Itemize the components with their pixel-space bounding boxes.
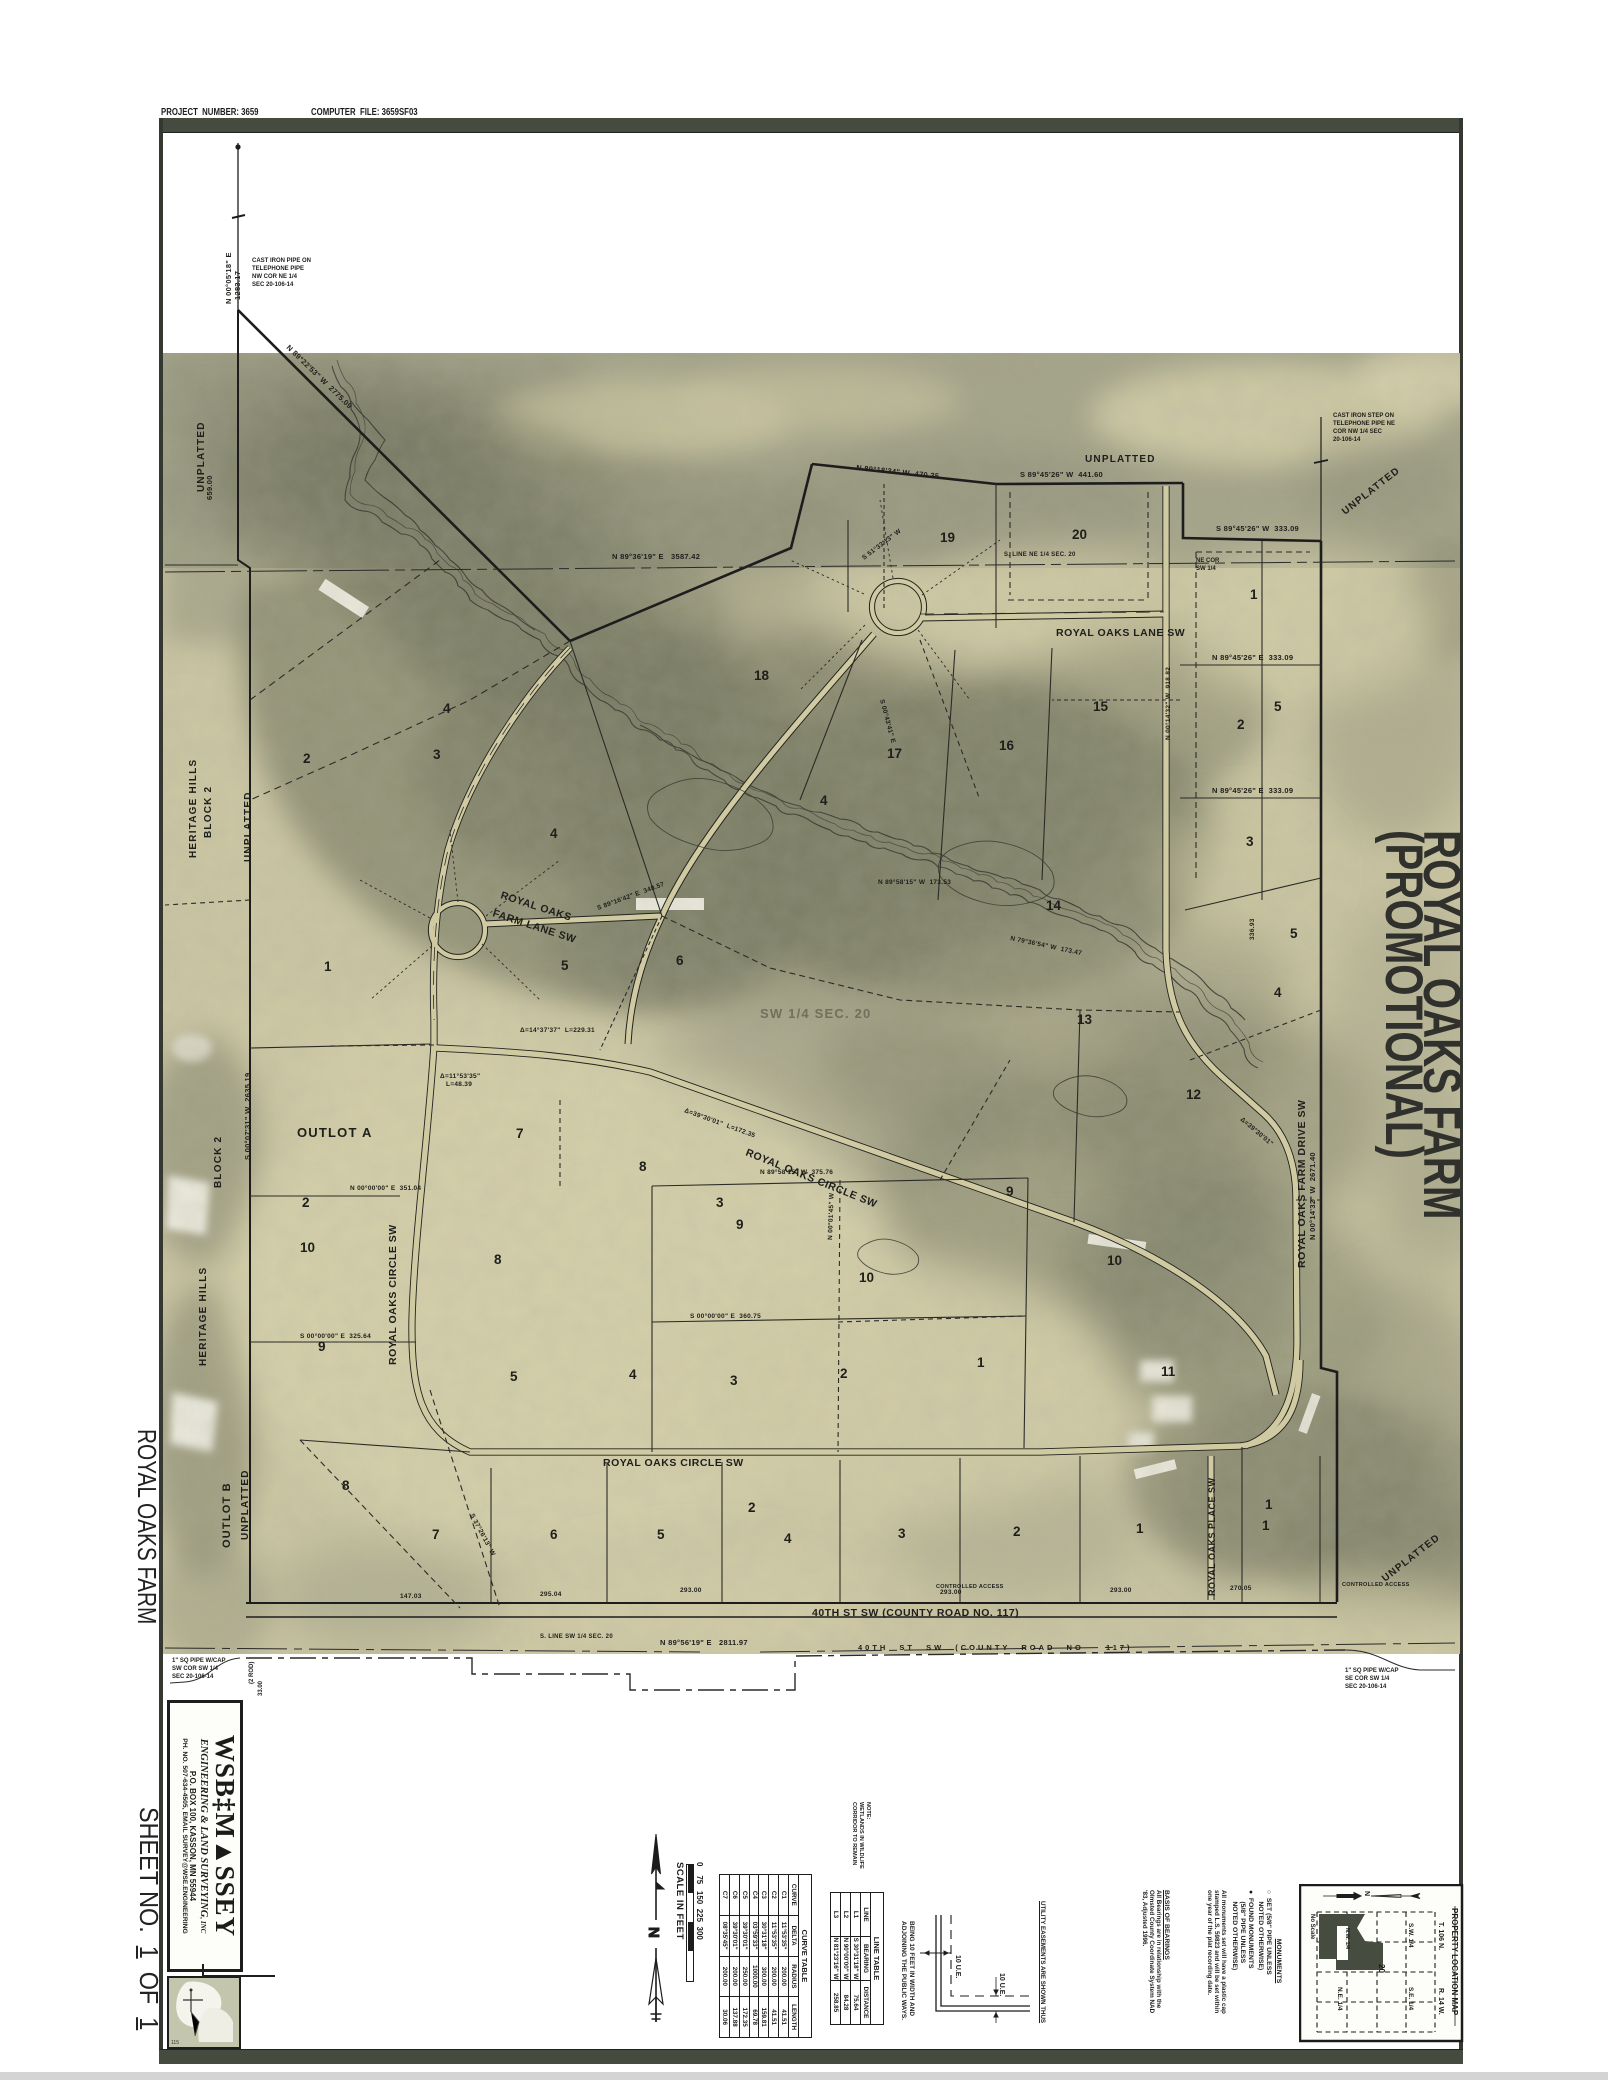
svg-text:14: 14 xyxy=(1046,898,1062,913)
svg-text:CONTROLLED ACCESS: CONTROLLED ACCESS xyxy=(1342,1582,1410,1588)
svg-text:10 U.E.: 10 U.E. xyxy=(998,1973,1005,1996)
svg-text:ROYAL OAKS CIRCLE SW: ROYAL OAKS CIRCLE SW xyxy=(387,1224,399,1365)
svg-text:40TH ST SW (COUNTY ROAD NO 11: 40TH ST SW (COUNTY ROAD NO 117) xyxy=(858,1643,1133,1652)
svg-text:293.00: 293.00 xyxy=(1110,1587,1132,1594)
svg-text:Δ=11°53'35": Δ=11°53'35" xyxy=(440,1072,480,1080)
svg-text:6: 6 xyxy=(550,1527,558,1542)
svg-text:T. 106 N.: T. 106 N. xyxy=(1437,1922,1444,1950)
svg-text:1: 1 xyxy=(1262,1518,1270,1533)
svg-text:CAST IRON PIPE ON: CAST IRON PIPE ON xyxy=(252,258,311,264)
svg-text:336.93: 336.93 xyxy=(1249,918,1256,940)
svg-text:7: 7 xyxy=(432,1527,440,1542)
svg-text:1: 1 xyxy=(324,959,332,974)
svg-text:S 89°45'26" W 333.09: S 89°45'26" W 333.09 xyxy=(1216,524,1299,533)
svg-text:4: 4 xyxy=(629,1367,637,1382)
svg-text:N 89°56'19" E 2811.97: N 89°56'19" E 2811.97 xyxy=(660,1638,748,1647)
svg-text:10: 10 xyxy=(859,1270,874,1285)
svg-text:6: 6 xyxy=(676,953,684,968)
svg-text:1: 1 xyxy=(977,1355,985,1370)
svg-text:N 89°36'19" E 3587.42: N 89°36'19" E 3587.42 xyxy=(612,552,700,561)
svg-text:HERITAGE HILLS: HERITAGE HILLS xyxy=(188,759,199,858)
svg-text:1283.17: 1283.17 xyxy=(233,271,242,300)
svg-text:5: 5 xyxy=(561,958,569,973)
svg-text:2: 2 xyxy=(302,1195,310,1210)
svg-text:293.00: 293.00 xyxy=(680,1587,702,1594)
svg-text:SEC 20-106-14: SEC 20-106-14 xyxy=(172,1674,214,1680)
svg-text:SW 1/4 SEC. 20: SW 1/4 SEC. 20 xyxy=(760,1006,871,1021)
svg-text:N.E. 1/4: N.E. 1/4 xyxy=(1336,1987,1343,2011)
svg-text:N.W. 1/4: N.W. 1/4 xyxy=(1344,1928,1350,1950)
svg-text:5: 5 xyxy=(657,1527,665,1542)
svg-text:9: 9 xyxy=(1006,1184,1014,1199)
svg-text:8: 8 xyxy=(342,1478,350,1493)
svg-text:1: 1 xyxy=(1250,587,1258,602)
svg-text:3: 3 xyxy=(898,1526,906,1541)
svg-text:18: 18 xyxy=(754,668,770,683)
svg-text:9: 9 xyxy=(736,1217,744,1232)
svg-text:3: 3 xyxy=(433,747,441,762)
svg-text:Δ=14°37'37" L=229.31: Δ=14°37'37" L=229.31 xyxy=(520,1026,595,1034)
svg-text:8: 8 xyxy=(494,1252,502,1267)
svg-text:293.00: 293.00 xyxy=(940,1589,962,1596)
svg-text:SW 1/4: SW 1/4 xyxy=(1196,566,1216,572)
svg-text:S.W. 1/4: S.W. 1/4 xyxy=(1407,1923,1414,1948)
svg-text:N 89°58'15" W 375.76: N 89°58'15" W 375.76 xyxy=(760,1168,833,1176)
svg-text:N 89°45'26" E 333.09: N 89°45'26" E 333.09 xyxy=(1212,653,1293,662)
svg-text:5: 5 xyxy=(1290,926,1298,941)
svg-text:TELEPHONE PIPE NE: TELEPHONE PIPE NE xyxy=(1333,421,1395,427)
svg-text:ROYAL OAKS PLACE SW: ROYAL OAKS PLACE SW xyxy=(1207,1477,1217,1596)
svg-text:N 00°14'32" W 918.82: N 00°14'32" W 918.82 xyxy=(1164,667,1172,740)
svg-text:15: 15 xyxy=(1093,699,1109,714)
svg-text:NW COR NE 1/4: NW COR NE 1/4 xyxy=(252,274,298,280)
svg-text:L=48.39: L=48.39 xyxy=(446,1081,472,1088)
svg-text:4: 4 xyxy=(784,1531,792,1546)
svg-text:13: 13 xyxy=(1077,1012,1093,1027)
svg-text:20: 20 xyxy=(1377,1964,1386,1973)
svg-text:16: 16 xyxy=(999,738,1015,753)
svg-text:S 89°45'26" W 441.60: S 89°45'26" W 441.60 xyxy=(1020,470,1103,479)
svg-text:HERITAGE HILLS: HERITAGE HILLS xyxy=(198,1267,209,1366)
svg-text:2: 2 xyxy=(840,1366,848,1381)
svg-text:CAST IRON STEP ON: CAST IRON STEP ON xyxy=(1333,413,1394,419)
svg-text:7: 7 xyxy=(516,1126,524,1141)
svg-text:PROPERTY LOCATION MAP: PROPERTY LOCATION MAP xyxy=(1450,1908,1459,2016)
svg-text:4: 4 xyxy=(1274,985,1282,1000)
svg-text:N: N xyxy=(645,1927,662,1938)
svg-text:(2 ROD): (2 ROD) xyxy=(249,1662,255,1684)
svg-text:2: 2 xyxy=(748,1500,756,1515)
svg-text:4: 4 xyxy=(443,701,451,716)
svg-text:8: 8 xyxy=(639,1159,647,1174)
svg-text:2: 2 xyxy=(303,751,311,766)
svg-text:N 00°14'32" W 2671.40: N 00°14'32" W 2671.40 xyxy=(1308,1152,1317,1240)
svg-text:N 00°05'18" E: N 00°05'18" E xyxy=(224,252,233,304)
svg-text:SE COR SW 1/4: SE COR SW 1/4 xyxy=(1345,1676,1390,1682)
svg-text:N 00°01'45" W: N 00°01'45" W xyxy=(826,1192,836,1240)
svg-text:COR NW 1/4 SEC: COR NW 1/4 SEC xyxy=(1333,429,1383,435)
svg-text:S. LINE NE 1/4 SEC. 20: S. LINE NE 1/4 SEC. 20 xyxy=(1004,552,1076,558)
svg-text:3: 3 xyxy=(716,1195,724,1210)
svg-text:5: 5 xyxy=(510,1369,518,1384)
svg-text:UNPLATTED: UNPLATTED xyxy=(240,1469,251,1540)
svg-text:12: 12 xyxy=(1186,1087,1201,1102)
svg-text:2: 2 xyxy=(1013,1524,1021,1539)
svg-text:OUTLOT A: OUTLOT A xyxy=(297,1125,373,1140)
svg-text:1" SQ PIPE W/CAP: 1" SQ PIPE W/CAP xyxy=(172,1658,226,1664)
svg-text:SW COR SW 1/4: SW COR SW 1/4 xyxy=(172,1666,219,1672)
svg-text:40TH ST SW (COUNTY ROAD NO. 11: 40TH ST SW (COUNTY ROAD NO. 117) xyxy=(812,1607,1019,1619)
svg-text:TELEPHONE PIPE: TELEPHONE PIPE xyxy=(252,266,304,272)
svg-text:4: 4 xyxy=(820,793,828,808)
svg-text:115: 115 xyxy=(171,2040,179,2046)
svg-text:UNPLATTED: UNPLATTED xyxy=(243,791,254,862)
svg-text:1: 1 xyxy=(1136,1521,1144,1536)
svg-text:17: 17 xyxy=(887,746,902,761)
svg-text:ROYAL OAKS FARM DRIVE SW: ROYAL OAKS FARM DRIVE SW xyxy=(1296,1100,1308,1268)
svg-text:N: N xyxy=(1363,1891,1370,1896)
svg-text:2: 2 xyxy=(1237,717,1245,732)
svg-text:BLOCK 2: BLOCK 2 xyxy=(213,1136,224,1188)
svg-text:S.E. 1/4: S.E. 1/4 xyxy=(1407,1987,1414,2011)
svg-text:33.00: 33.00 xyxy=(258,1680,264,1696)
svg-text:20-106-14: 20-106-14 xyxy=(1333,437,1361,443)
svg-text:10 U.E.: 10 U.E. xyxy=(954,1955,961,1978)
svg-text:S. LINE SW 1/4 SEC. 20: S. LINE SW 1/4 SEC. 20 xyxy=(540,1634,613,1640)
svg-text:SEC 20-106-14: SEC 20-106-14 xyxy=(252,282,294,288)
svg-text:ROYAL OAKS LANE SW: ROYAL OAKS LANE SW xyxy=(1056,627,1185,639)
svg-text:5: 5 xyxy=(1274,699,1282,714)
svg-text:1" SQ PIPE W/CAP: 1" SQ PIPE W/CAP xyxy=(1345,1668,1399,1674)
svg-text:9: 9 xyxy=(318,1339,326,1354)
svg-text:N 00°00'00" E 351.04: N 00°00'00" E 351.04 xyxy=(350,1184,421,1192)
svg-text:3: 3 xyxy=(1246,834,1254,849)
svg-text:No Scale: No Scale xyxy=(1309,1914,1315,1940)
svg-text:4: 4 xyxy=(550,826,558,841)
svg-text:BLOCK 2: BLOCK 2 xyxy=(203,786,214,838)
svg-text:659.00: 659.00 xyxy=(205,475,214,500)
svg-text:S 00°00'00" E 360.75: S 00°00'00" E 360.75 xyxy=(690,1312,761,1320)
svg-text:147.03: 147.03 xyxy=(400,1593,422,1600)
svg-text:NE COR: NE COR xyxy=(1196,558,1220,564)
svg-text:CONTROLLED ACCESS: CONTROLLED ACCESS xyxy=(936,1584,1004,1590)
svg-text:10: 10 xyxy=(300,1240,315,1255)
svg-text:11: 11 xyxy=(1161,1364,1176,1379)
svg-text:UNPLATTED: UNPLATTED xyxy=(1085,454,1156,465)
svg-text:S 00°00'00" E 325.64: S 00°00'00" E 325.64 xyxy=(300,1332,371,1340)
svg-text:20: 20 xyxy=(1072,527,1087,542)
svg-text:3: 3 xyxy=(730,1373,738,1388)
svg-text:19: 19 xyxy=(940,530,955,545)
svg-text:N 89°58'15" W 173.53: N 89°58'15" W 173.53 xyxy=(878,878,951,886)
svg-text:270.05: 270.05 xyxy=(1230,1585,1252,1592)
svg-text:R. 14 W.: R. 14 W. xyxy=(1437,1988,1444,2015)
svg-text:N 89°45'26" E 333.09: N 89°45'26" E 333.09 xyxy=(1212,786,1293,795)
svg-text:SEC 20-106-14: SEC 20-106-14 xyxy=(1345,1684,1387,1690)
svg-text:295.04: 295.04 xyxy=(540,1591,562,1598)
svg-text:OUTLOT B: OUTLOT B xyxy=(221,1482,233,1548)
svg-text:ROYAL OAKS CIRCLE SW: ROYAL OAKS CIRCLE SW xyxy=(603,1457,744,1469)
svg-text:S 00°07'31" W 2635.19: S 00°07'31" W 2635.19 xyxy=(243,1073,252,1161)
svg-text:10: 10 xyxy=(1107,1253,1122,1268)
svg-text:1: 1 xyxy=(1265,1497,1273,1512)
